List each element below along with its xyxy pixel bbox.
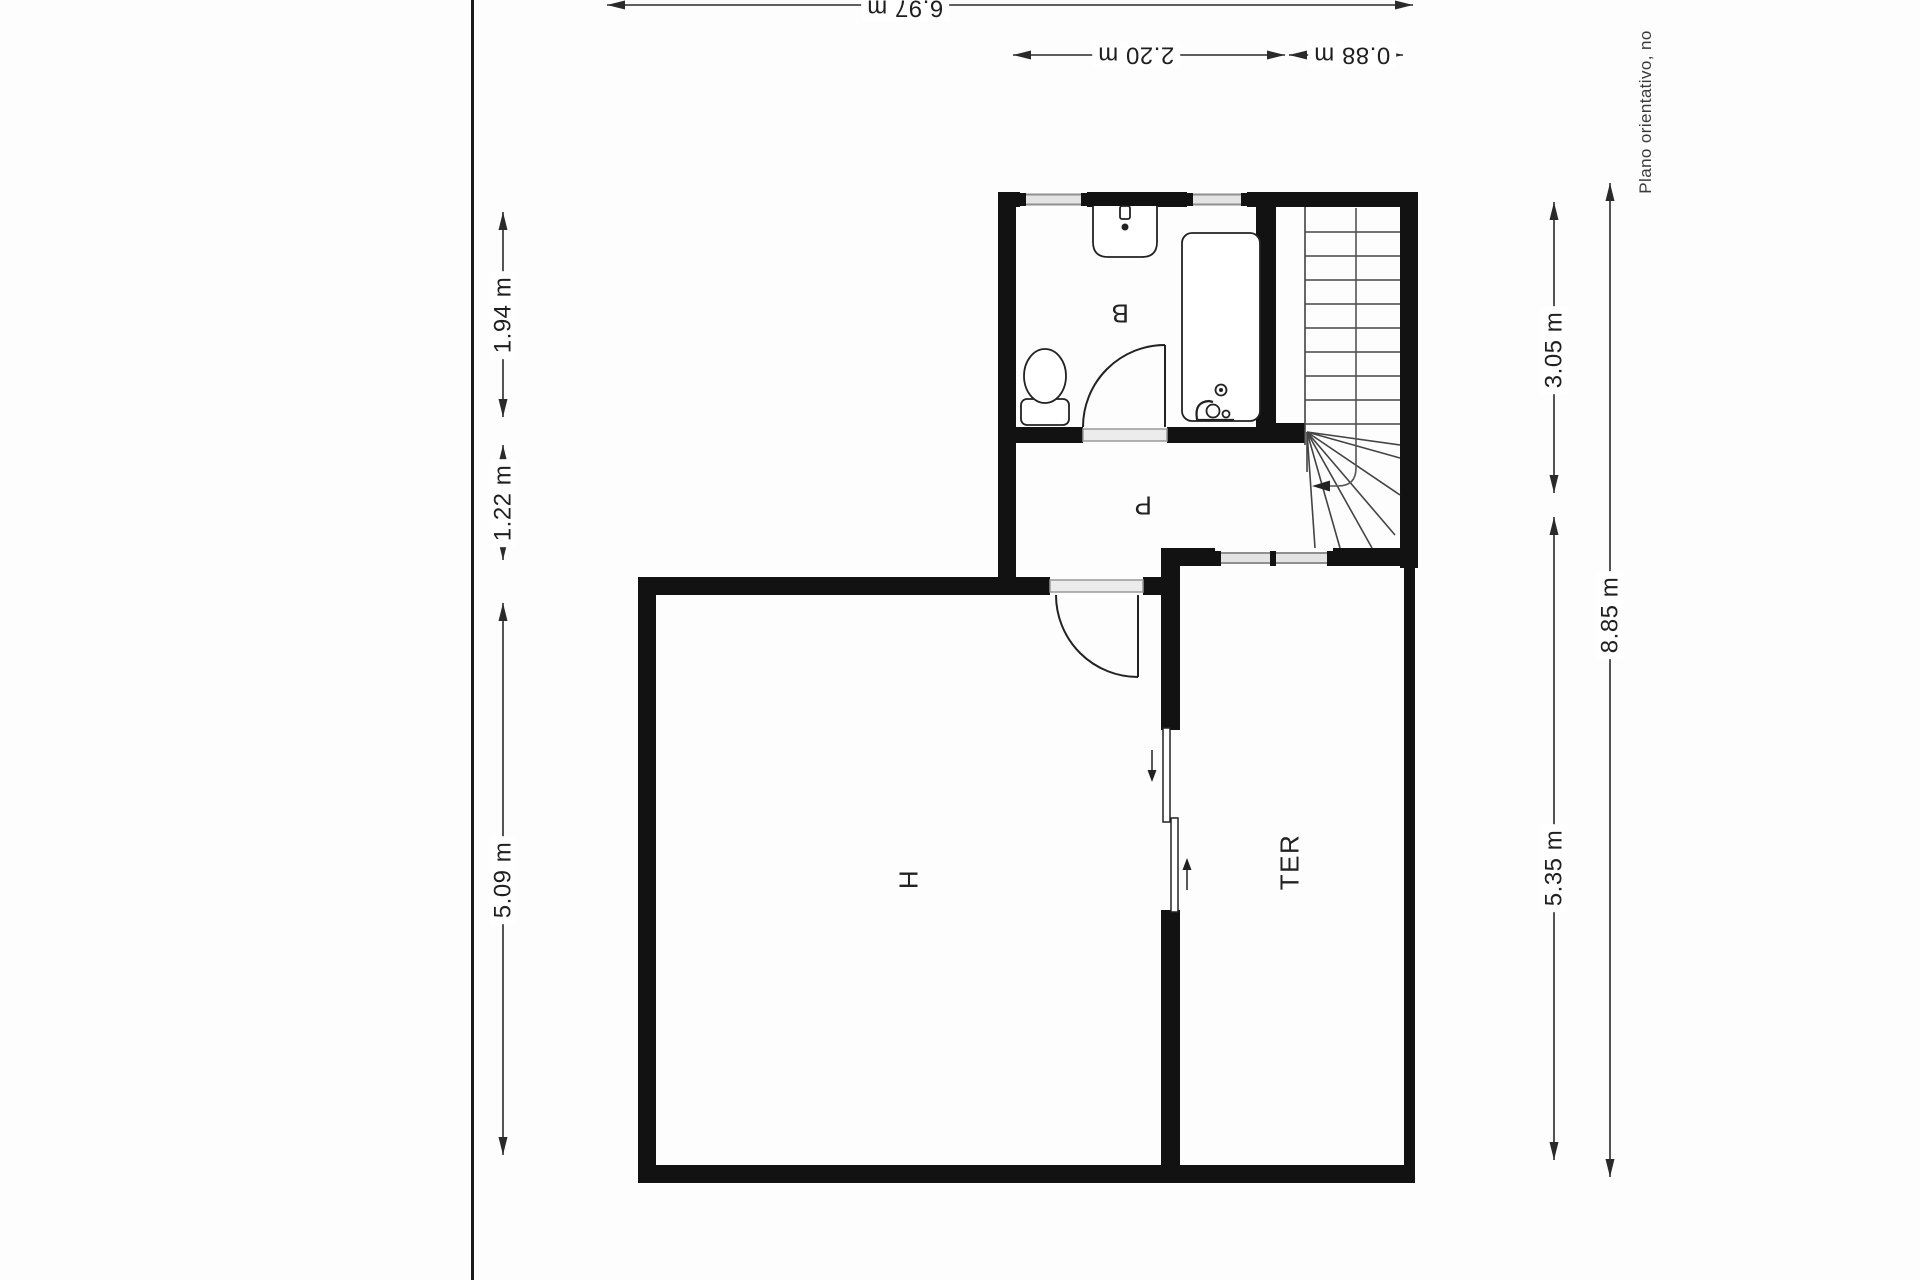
dimension-label-bathroom-width: 2.20 m [1092, 41, 1180, 68]
wall-bedroom-terrace [1161, 548, 1180, 730]
stairs-walk-line [1312, 208, 1356, 492]
wall-bath-bottom [998, 427, 1083, 443]
wall-bath-stairs-return [1276, 423, 1305, 443]
bathroom-door [1083, 345, 1165, 427]
room-label-bedroom: H [894, 870, 921, 889]
disclaimer-text: Plano orientativo, no [1637, 30, 1655, 193]
walls [638, 192, 1418, 1183]
wall-right-lower [1404, 568, 1415, 1183]
room-label-bathroom: B [1111, 299, 1129, 326]
window-bathroom-right [1187, 193, 1247, 206]
windows [1020, 193, 1333, 566]
bathroom-fixtures [1021, 206, 1260, 425]
wall-right-upper [1400, 192, 1418, 568]
room-label-hallway: P [1134, 491, 1152, 518]
sliding-door-arrow-up [1183, 858, 1192, 890]
dimension-label-stairs-width: 0.88 m [1308, 41, 1396, 68]
threshold-hall-door [1050, 580, 1143, 592]
wall-bottom [638, 1165, 1415, 1183]
threshold-bathroom-door [1083, 429, 1167, 441]
dimension-label-terrace-depth: 5.35 m [1540, 824, 1567, 912]
wall-bedroom-top [1143, 577, 1163, 595]
floor-plan-page: 6.97 m 2.20 m 0.88 m 1.94 m 1.22 m 5.09 … [0, 0, 1920, 1280]
shower-icon [1182, 233, 1260, 421]
wall-top [1087, 192, 1187, 207]
dimension-label-overall-depth: 8.85 m [1596, 571, 1623, 659]
dimension-label-upper-depth: 3.05 m [1540, 306, 1567, 394]
dimension-right-overall [1606, 183, 1615, 1177]
stairs-winders [1307, 432, 1400, 548]
page-border-line [471, 0, 474, 1280]
wall-bedroom-terrace [1161, 910, 1180, 1183]
sink-icon [1093, 206, 1157, 257]
sliding-door-arrow-down [1148, 750, 1157, 782]
dimension-label-bedroom-depth: 5.09 m [489, 836, 516, 924]
wall-terrace-top [1333, 548, 1418, 566]
sliding-door [1148, 728, 1192, 912]
wall-left-lower [638, 577, 656, 1183]
wall-bedroom-top [638, 577, 1050, 595]
dimension-label-hallway-depth: 1.22 m [489, 459, 516, 547]
wall-left-upper [998, 192, 1016, 577]
stairs [1305, 207, 1400, 548]
toilet-icon [1021, 349, 1069, 425]
dimension-top-overall [607, 1, 1413, 10]
dimension-label-overall-width: 6.97 m [861, 0, 949, 22]
room-label-terrace: TER [1276, 834, 1303, 891]
floor-plan-drawing [0, 0, 1920, 1280]
hall-bedroom-door [1056, 595, 1138, 677]
window-bathroom-left [1020, 193, 1087, 206]
dimension-label-bathroom-depth: 1.94 m [489, 271, 516, 359]
window-terrace [1215, 551, 1333, 566]
wall-bath-bottom [1167, 427, 1276, 443]
